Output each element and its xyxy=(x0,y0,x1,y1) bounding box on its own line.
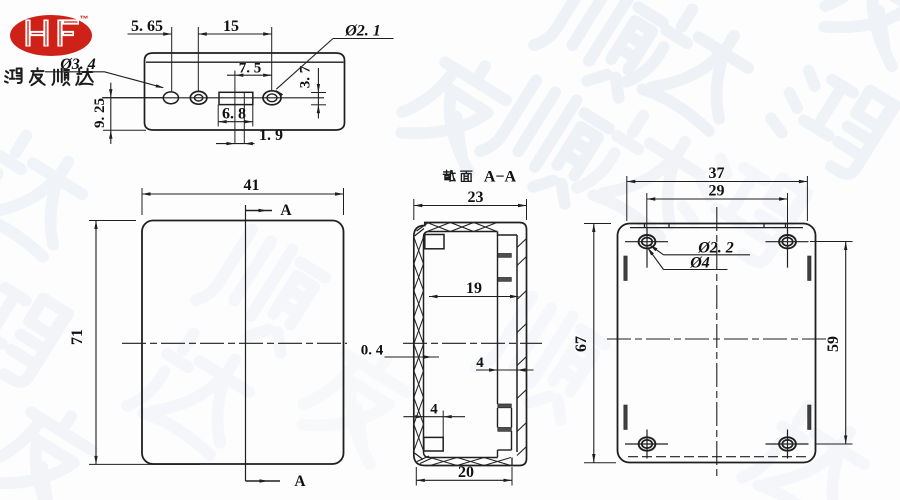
svg-text:Ø3. 4: Ø3. 4 xyxy=(59,56,96,73)
svg-text:15: 15 xyxy=(223,18,239,35)
svg-text:Ø2. 1: Ø2. 1 xyxy=(344,23,381,40)
svg-text:5. 65: 5. 65 xyxy=(131,18,163,35)
svg-text:71: 71 xyxy=(69,329,86,345)
svg-text:67: 67 xyxy=(573,336,590,352)
svg-text:0. 4: 0. 4 xyxy=(361,343,384,359)
svg-text:59: 59 xyxy=(825,336,842,352)
svg-text:4: 4 xyxy=(476,355,484,371)
svg-text:37: 37 xyxy=(709,165,725,182)
svg-text:23: 23 xyxy=(468,189,484,206)
svg-text:A: A xyxy=(294,473,306,490)
svg-text:20: 20 xyxy=(458,464,474,481)
svg-text:41: 41 xyxy=(244,177,260,194)
svg-text:™: ™ xyxy=(80,14,89,24)
svg-text:4: 4 xyxy=(430,402,438,418)
svg-text:A: A xyxy=(280,202,292,219)
svg-text:A−A: A−A xyxy=(484,169,517,186)
svg-text:9. 25: 9. 25 xyxy=(92,98,108,128)
svg-text:19: 19 xyxy=(466,280,482,297)
svg-text:29: 29 xyxy=(709,183,725,200)
svg-text:7. 5: 7. 5 xyxy=(239,61,262,77)
svg-text:1. 9: 1. 9 xyxy=(259,127,283,144)
svg-text:6. 8: 6. 8 xyxy=(222,106,246,123)
